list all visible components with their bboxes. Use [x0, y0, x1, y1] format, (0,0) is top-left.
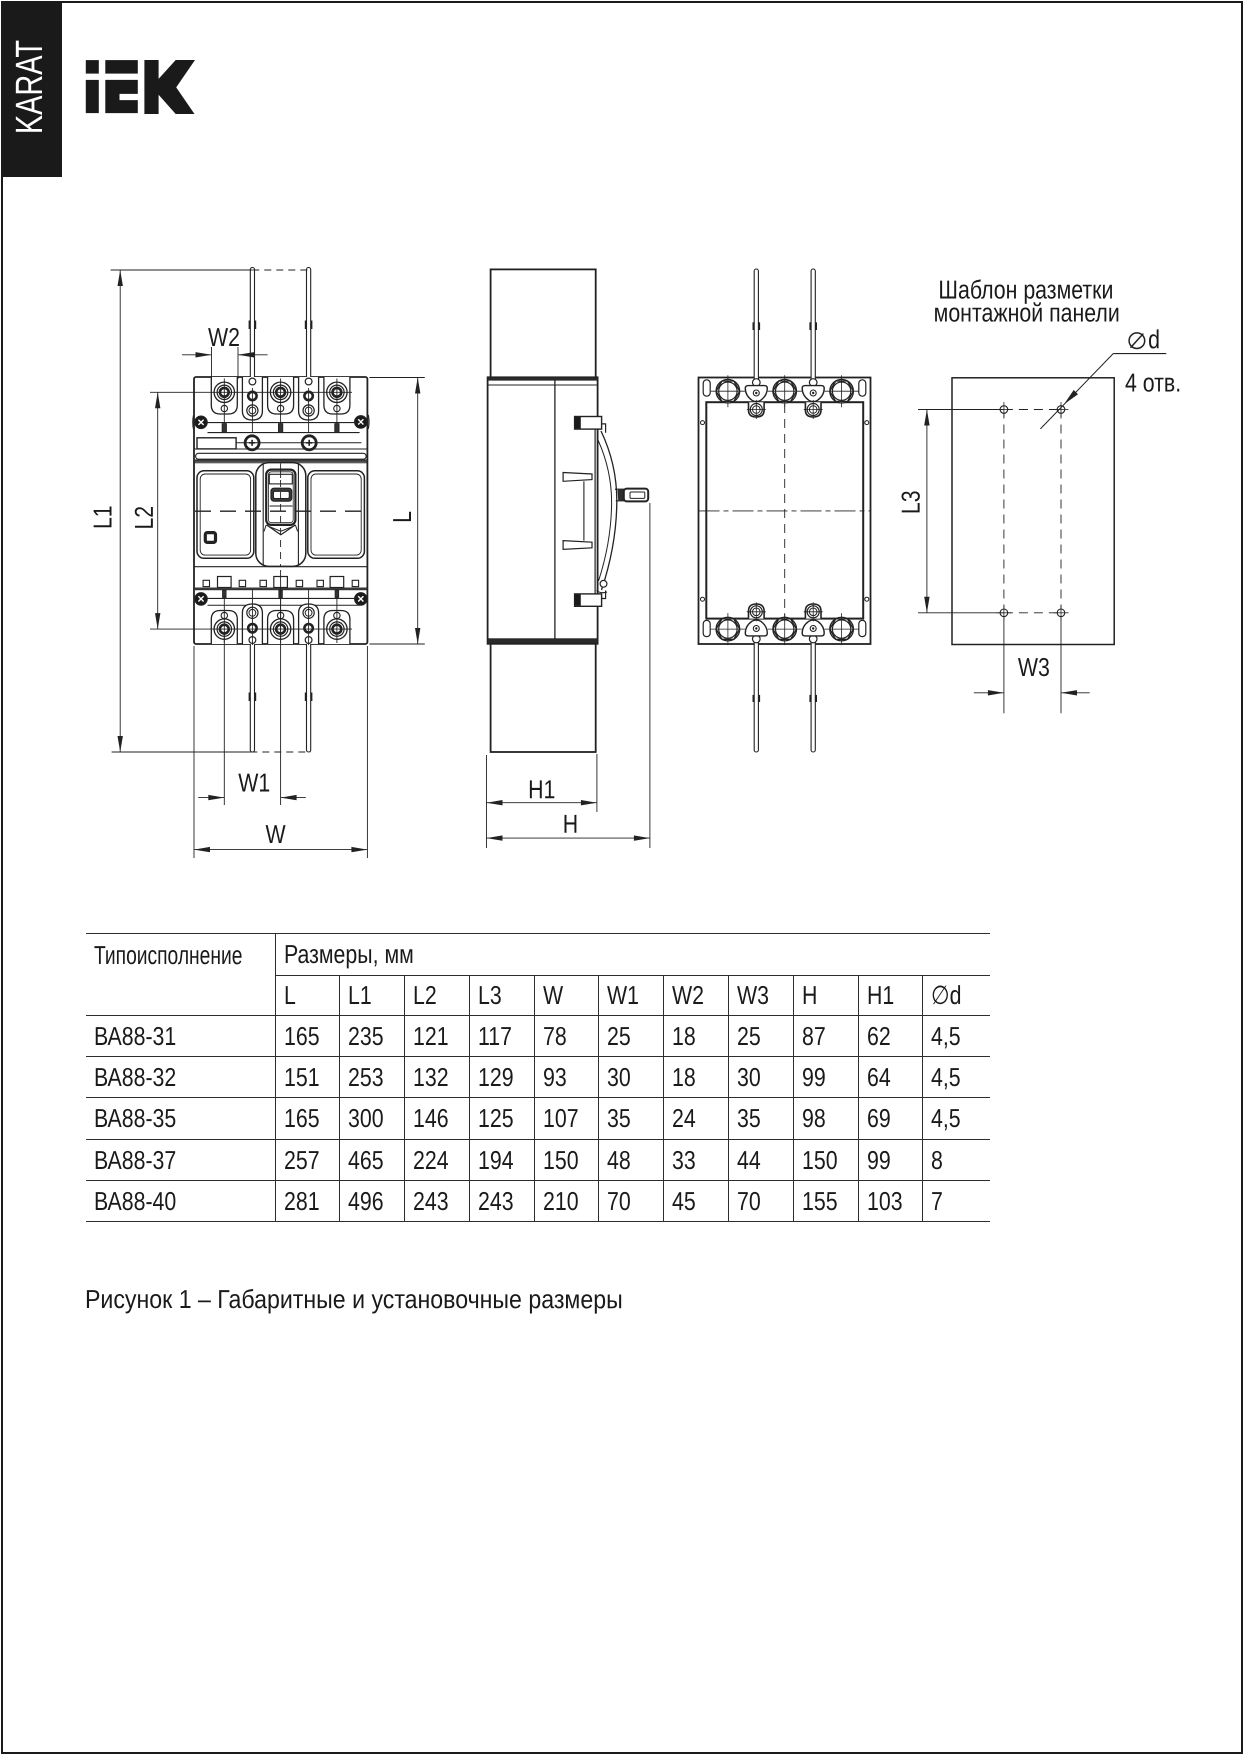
- svg-text:L1: L1: [87, 505, 117, 529]
- svg-text:W1: W1: [238, 767, 270, 797]
- svg-text:W2: W2: [208, 322, 240, 352]
- svg-text:H1: H1: [528, 774, 555, 804]
- svg-text:4 отв.: 4 отв.: [1125, 368, 1181, 398]
- svg-text:H: H: [563, 809, 578, 839]
- svg-text:монтажной панели: монтажной панели: [934, 297, 1120, 327]
- svg-text:W3: W3: [1018, 652, 1050, 682]
- svg-text:d: d: [1148, 324, 1160, 354]
- svg-text:L: L: [387, 511, 417, 523]
- svg-text:W: W: [265, 819, 286, 849]
- svg-text:L2: L2: [129, 506, 159, 530]
- svg-text:L3: L3: [896, 490, 926, 514]
